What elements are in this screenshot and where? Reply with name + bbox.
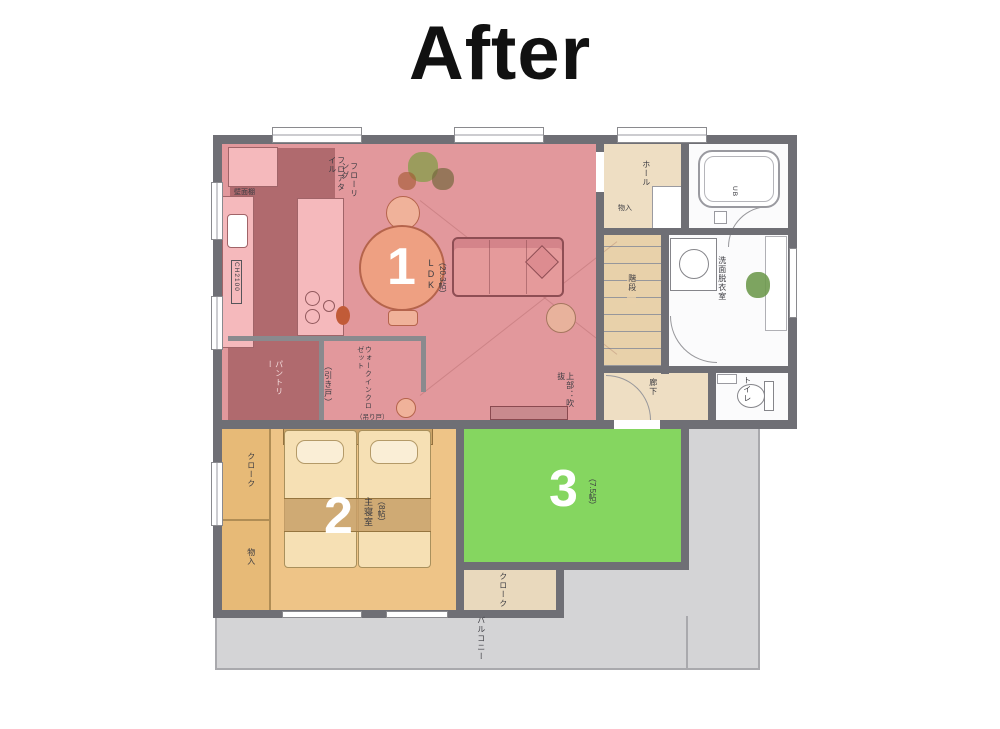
open-above-label: 上部：吹抜 bbox=[556, 372, 574, 412]
hall-label: ホール bbox=[641, 160, 650, 196]
bath-ub-label: UB bbox=[731, 186, 738, 202]
cloak-south-label: クローク bbox=[498, 572, 507, 612]
pillow bbox=[370, 440, 418, 464]
window bbox=[211, 462, 223, 526]
washing-machine-drum bbox=[679, 249, 709, 279]
shower-drain bbox=[714, 211, 727, 224]
zone-2-label: 主寝室 （8帖） bbox=[362, 497, 387, 527]
window bbox=[211, 182, 223, 240]
stove-burner bbox=[305, 291, 320, 306]
partition-wall bbox=[421, 336, 426, 392]
wall bbox=[681, 135, 689, 235]
page-title: After bbox=[0, 10, 1000, 97]
blanket-band bbox=[284, 498, 431, 532]
zone-3-label: （7.5帖） bbox=[586, 474, 598, 509]
corridor-label: 廊下 bbox=[648, 378, 657, 406]
stove-burner bbox=[323, 300, 335, 312]
wall bbox=[456, 562, 689, 570]
hall-storage-label: 物入 bbox=[618, 203, 632, 213]
floor-plan-page: After bbox=[0, 0, 1000, 729]
cloak-left-label: クローク bbox=[246, 452, 255, 496]
plant bbox=[432, 168, 454, 190]
pillow bbox=[296, 440, 344, 464]
washroom-label: 洗面脱衣室 bbox=[717, 256, 726, 328]
zone-2-name: 主寝室 bbox=[362, 497, 375, 527]
bay-window bbox=[272, 127, 362, 143]
sofa-cushion-divider bbox=[489, 240, 490, 294]
balcony-area-mid bbox=[560, 566, 690, 616]
balcony-label: バルコニー bbox=[476, 616, 485, 664]
wall bbox=[213, 135, 222, 425]
toilet-label: トイレ bbox=[742, 376, 751, 412]
cloak-south-floor bbox=[460, 567, 560, 614]
wall bbox=[596, 366, 797, 373]
bay-window bbox=[454, 127, 544, 143]
wall bbox=[708, 366, 716, 429]
round-stool bbox=[546, 303, 576, 333]
flooring-label: フローリング bbox=[340, 162, 358, 202]
zone-1-number: 1 bbox=[387, 241, 416, 293]
sofa-cushion-divider bbox=[526, 240, 527, 294]
kettle bbox=[336, 306, 350, 325]
toilet-fixture-tank bbox=[764, 381, 774, 411]
window bbox=[282, 611, 362, 618]
hanging-door-label: （吊り戸） bbox=[356, 411, 389, 421]
cloak-left-divider bbox=[219, 519, 271, 521]
toilet-sink bbox=[717, 374, 737, 384]
zone-2-size: （8帖） bbox=[376, 497, 387, 527]
zone-3-size: （7.5帖） bbox=[587, 474, 598, 509]
window bbox=[789, 248, 797, 318]
wall-shelf bbox=[228, 147, 278, 187]
sliding-door-label: （引き戸） bbox=[323, 362, 332, 408]
hall-storage-box bbox=[652, 186, 682, 230]
washroom-plant bbox=[746, 272, 770, 298]
partition-wall bbox=[228, 336, 426, 341]
storage-left-label: 物入 bbox=[246, 548, 255, 576]
window bbox=[386, 611, 448, 618]
ceiling-height-label: CH2100 bbox=[231, 260, 242, 304]
stove-burner bbox=[305, 309, 320, 324]
zone-1-name: LDK bbox=[426, 258, 436, 298]
plant bbox=[398, 172, 416, 190]
balcony-area-right bbox=[686, 425, 760, 670]
walk-in-closet-label: ウォークインクロゼット bbox=[356, 346, 371, 416]
bathtub-inner bbox=[704, 156, 774, 202]
zone-1-size: （20.3帖） bbox=[437, 258, 448, 298]
dining-chair bbox=[388, 310, 418, 326]
stairs-label: 階段 bbox=[627, 274, 636, 304]
wall bbox=[661, 228, 669, 374]
wall bbox=[456, 420, 464, 618]
balcony-area-bottom bbox=[215, 612, 760, 670]
wall bbox=[596, 228, 797, 235]
zone-2-number: 2 bbox=[324, 490, 353, 542]
window bbox=[211, 296, 223, 350]
wall bbox=[681, 420, 689, 570]
bay-window bbox=[617, 127, 707, 143]
pantry-label: パントリー bbox=[265, 360, 283, 404]
door-opening bbox=[614, 420, 660, 429]
wic-stool bbox=[396, 398, 416, 418]
door-opening bbox=[596, 152, 604, 192]
zone-3-number: 3 bbox=[549, 463, 578, 515]
kitchen-sink bbox=[227, 214, 248, 248]
zone-1-label: LDK （20.3帖） bbox=[426, 258, 448, 298]
wall-shelf-label: 壁面棚 bbox=[234, 187, 255, 197]
